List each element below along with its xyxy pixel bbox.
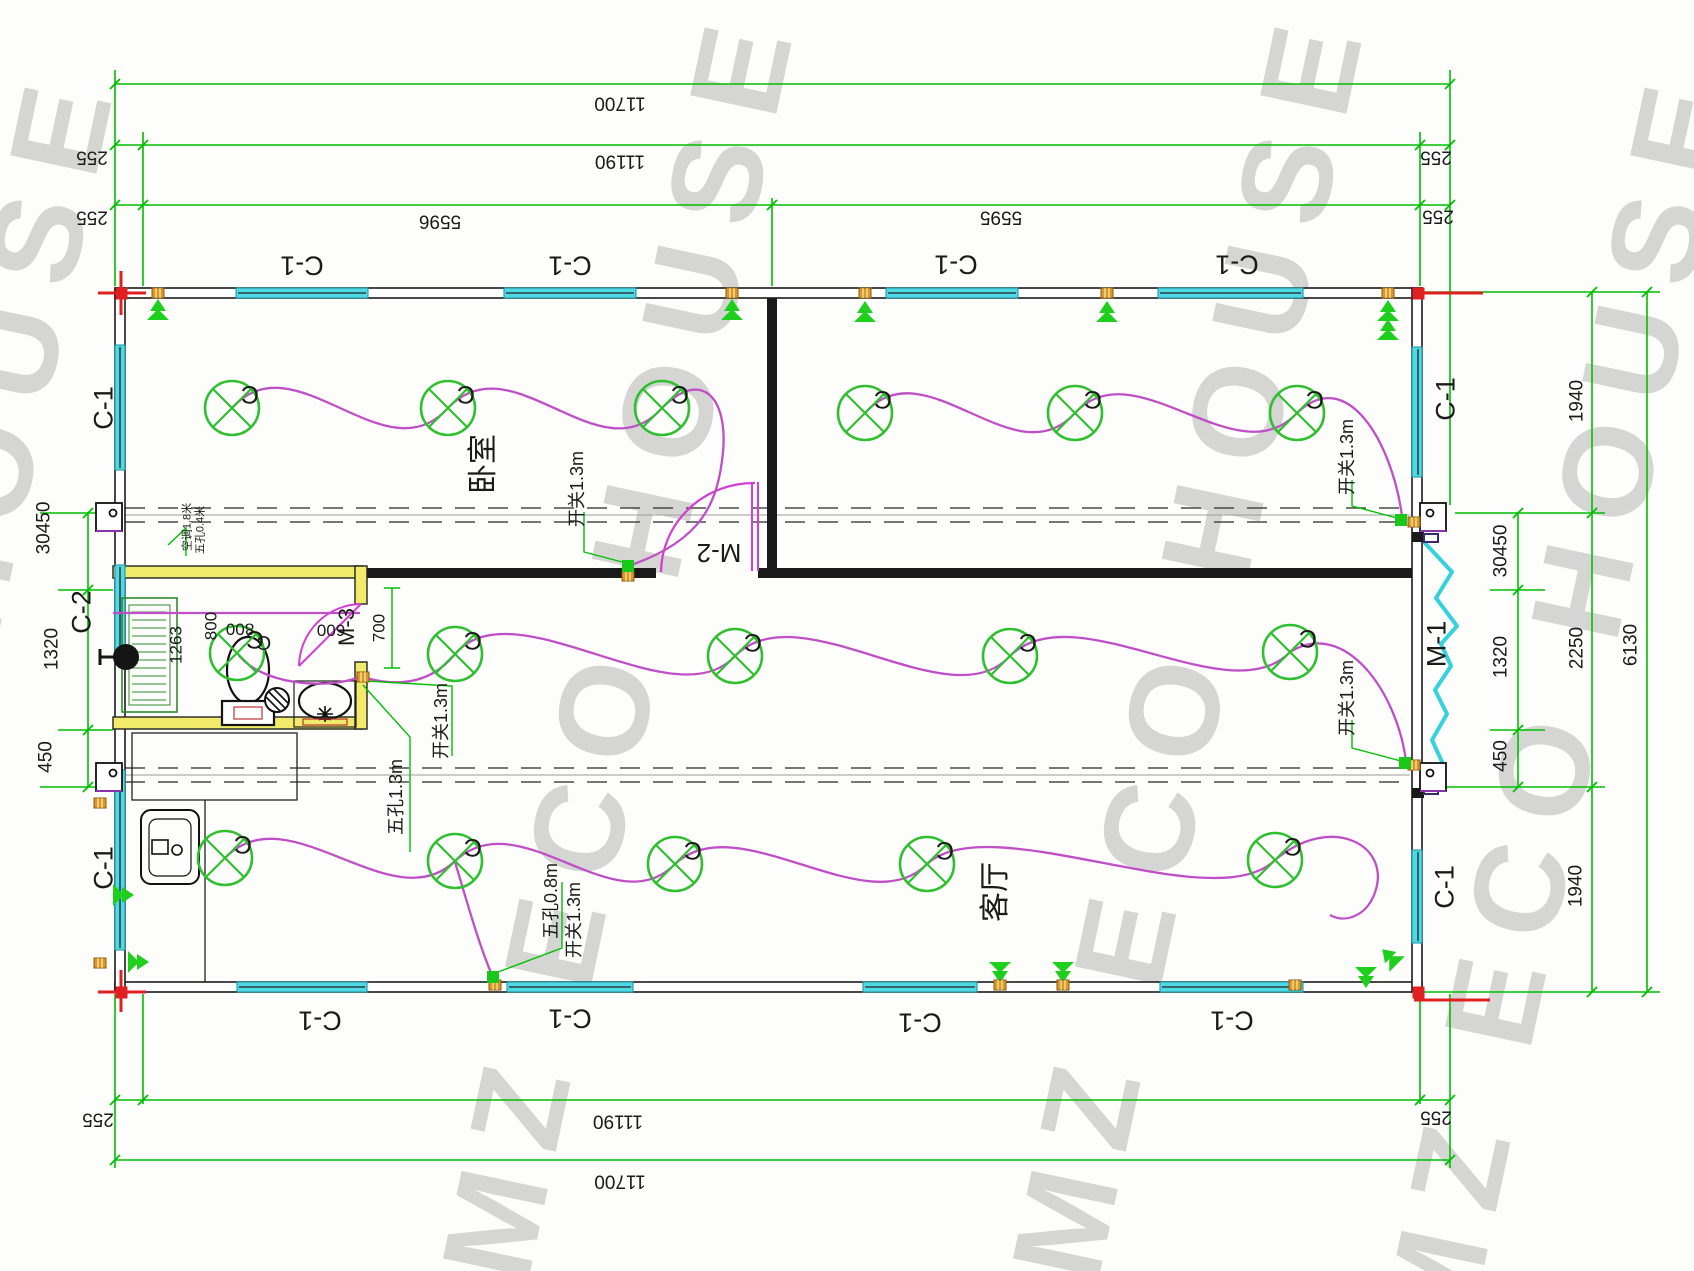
- wall-switches: [487, 514, 1411, 983]
- lamp-tag: C: [744, 628, 762, 656]
- lamp-tag: C: [684, 836, 702, 864]
- lamp-tag-bathroom: C: [257, 632, 271, 652]
- junction-box-icon: [94, 798, 106, 808]
- room-label-bedroom: 卧室: [469, 434, 499, 494]
- lamp-tag: C: [1019, 628, 1037, 656]
- ceiling-light-icon: C: [1263, 624, 1317, 679]
- win-label-left-top: C-1: [91, 386, 118, 430]
- ceiling-light-icon: C: [838, 385, 892, 440]
- ceiling-light-icon: C: [635, 380, 689, 435]
- switch-icon: [622, 560, 634, 572]
- junction-box-icon: [1382, 288, 1394, 298]
- junction-box-icon: [1289, 980, 1301, 990]
- lamp-tag: C: [1284, 832, 1302, 860]
- ceiling-light-icon: C: [421, 380, 475, 435]
- door-label-m2: M-2: [697, 540, 742, 566]
- dim-top-255-r2: 255: [1422, 207, 1454, 226]
- dim-right-30450: 30450: [1492, 525, 1511, 578]
- lamp-tag: C: [1306, 385, 1324, 413]
- ac-socket-icon: [147, 299, 169, 320]
- dim-bot-255-l: 255: [82, 1110, 114, 1129]
- ceiling-light-icon: C: [1248, 832, 1302, 887]
- dim-top-11190: 11190: [595, 152, 645, 171]
- callout-switch-living-right: 开关1.3m: [1338, 660, 1356, 736]
- dim-right-6130: 6130: [1622, 624, 1641, 666]
- lamp-tag: C: [464, 626, 482, 654]
- ceiling-light-icon: C: [648, 836, 702, 891]
- wash-basin: [294, 681, 356, 727]
- win-label-bot-1: C-1: [298, 1007, 342, 1034]
- room-label-living: 客厅: [981, 862, 1011, 922]
- dim-top-255-l1: 255: [76, 148, 108, 167]
- dim-bot-255-r: 255: [1420, 1108, 1452, 1127]
- junction-box-icon: [994, 980, 1006, 990]
- switch-icon: [1395, 514, 1407, 526]
- ac-socket-icon: [721, 299, 743, 320]
- ac-socket-icon: [1374, 941, 1404, 971]
- lamp-tag: C: [1299, 624, 1317, 652]
- ceiling-light-icon: C: [205, 380, 259, 435]
- win-label-top-2: C-1: [548, 252, 592, 279]
- junction-box-icon: [1408, 517, 1420, 527]
- win-label-bot-3: C-1: [898, 1009, 942, 1036]
- win-label-right-top: C-1: [1433, 377, 1460, 421]
- callout-switch-bathroom: 开关1.3m: [432, 683, 450, 759]
- lamp-tag: C: [874, 385, 892, 413]
- callout-switch-bedroom2: 开关1.3m: [1338, 419, 1356, 495]
- dim-left-30450: 30450: [35, 502, 54, 555]
- ac-socket-icon: [128, 951, 149, 973]
- callout-switch-bedroom1: 开关1.3m: [568, 451, 586, 527]
- junction-box-icon: [1057, 980, 1069, 990]
- junction-box-icon: [622, 571, 634, 581]
- dim-right-450: 450: [1492, 740, 1511, 772]
- ceiling-light-icon: C: [983, 628, 1037, 683]
- dim-washer-1263: 1263: [168, 626, 185, 664]
- dim-right-1320: 1320: [1492, 636, 1511, 678]
- lamp-tag: C: [936, 836, 954, 864]
- callout-socket-5hole-13: 五孔1.3m: [387, 759, 405, 835]
- kitchen-counter: [132, 733, 297, 982]
- lamp-tag: C: [457, 380, 475, 408]
- dim-bot-11700: 11700: [594, 1172, 645, 1191]
- dim-right-1940-top: 1940: [1568, 380, 1587, 422]
- win-label-right-bot: C-1: [1432, 865, 1459, 909]
- door-label-m1: M-1: [1424, 621, 1451, 668]
- lamp-tag: C: [464, 833, 482, 861]
- washing-machine: [100, 598, 177, 712]
- junction-box-icon: [94, 958, 106, 968]
- ac-socket-icon: [854, 301, 876, 322]
- junction-box-icon: [152, 288, 164, 298]
- floor-plan-canvas: MZ ECO HOUSE MZ ECO HOUSE MZ ECO HOUSE M…: [0, 0, 1694, 1271]
- win-label-top-3: C-1: [934, 251, 978, 278]
- ceiling-lights: CCCCCCCCCCCCCCCC: [198, 380, 1324, 891]
- ceiling-light-icon: C: [1048, 385, 1102, 440]
- callout-switch-bottom: 开关1.3m: [565, 882, 583, 958]
- ceiling-light-icon: C: [428, 626, 482, 681]
- win-label-left-bot: C-1: [91, 846, 118, 890]
- callout-ac-18: 空调1.8米: [183, 503, 194, 551]
- dim-washer-800: 800: [203, 612, 220, 640]
- dim-700: 700: [371, 614, 388, 642]
- ceiling-light-icon: C: [428, 833, 482, 888]
- switch-icon: [1399, 757, 1411, 769]
- dim-toilet-800: 800: [226, 621, 254, 638]
- lamp-tag: C: [234, 830, 252, 858]
- switch-icon: [487, 971, 499, 983]
- kitchen-sink: [141, 810, 199, 884]
- callout-socket-04: 五孔0.4米: [196, 506, 207, 554]
- dim-door-600: 600: [317, 622, 345, 639]
- walls: [115, 288, 1422, 992]
- dim-right-1940-bot: 1940: [1567, 865, 1586, 907]
- dim-top-5595: 5595: [980, 208, 1022, 227]
- win-label-left-mid: C-2: [69, 590, 96, 634]
- ceiling-light-icon: C: [198, 830, 252, 885]
- ac-socket-icon: [1377, 300, 1399, 321]
- win-label-bot-2: C-1: [548, 1005, 592, 1032]
- dim-top-11700: 11700: [594, 94, 645, 113]
- floor-drain: [265, 688, 289, 712]
- corner-marks: [98, 271, 1490, 1012]
- dim-left-1320: 1320: [43, 628, 62, 670]
- dim-top-255-r1: 255: [1420, 148, 1452, 167]
- dim-bot-11190: 11190: [593, 1112, 643, 1131]
- win-label-top-1: C-1: [280, 252, 324, 279]
- lamp-tag: C: [241, 380, 259, 408]
- ac-socket-icon: [1377, 319, 1399, 340]
- dim-left-450: 450: [37, 741, 56, 773]
- junction-box-icon: [357, 672, 369, 682]
- lamp-tag: C: [671, 380, 689, 408]
- dim-top-5596: 5596: [419, 212, 461, 231]
- ceiling-light-icon: C: [708, 628, 762, 683]
- ceiling-light-icon: C: [1270, 385, 1324, 440]
- dim-right-2250: 2250: [1568, 627, 1587, 669]
- junction-box-icon: [859, 288, 871, 298]
- junction-box-icon: [726, 288, 738, 298]
- ac-socket-icon: [1096, 301, 1118, 322]
- dim-top-255-l2: 255: [76, 208, 108, 227]
- win-label-bot-4: C-1: [1210, 1007, 1254, 1034]
- callout-socket-5hole-08: 五孔0.8m: [542, 863, 560, 939]
- ceiling-light-icon: C: [900, 836, 954, 891]
- lamp-tag: C: [1084, 385, 1102, 413]
- junction-box-icon: [1101, 288, 1113, 298]
- win-label-top-4: C-1: [1215, 251, 1259, 278]
